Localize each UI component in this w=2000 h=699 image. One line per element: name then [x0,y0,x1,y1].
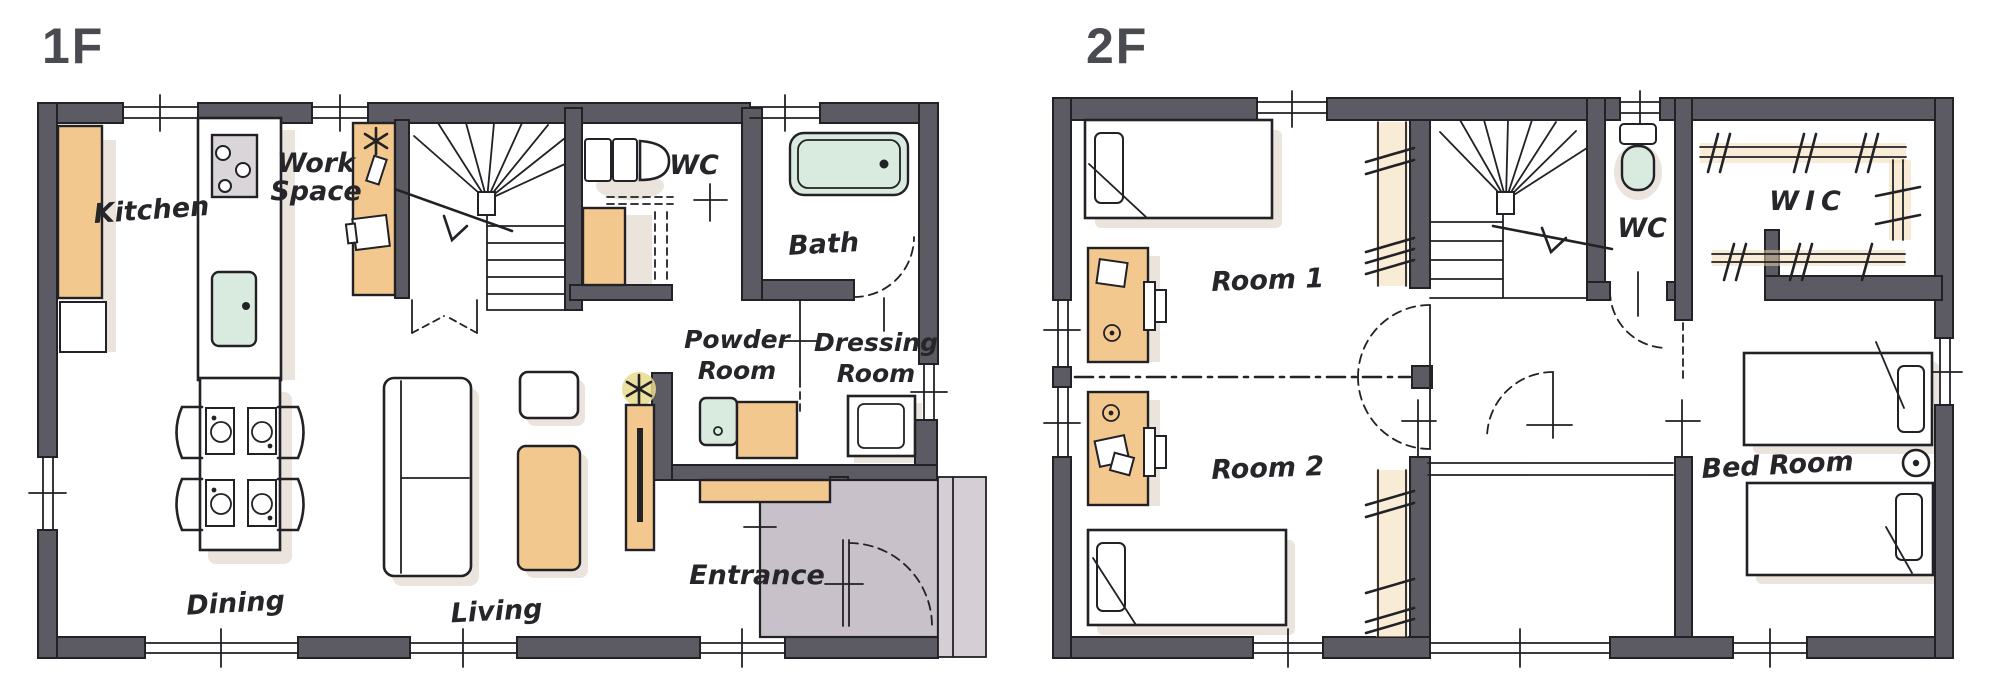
floorplan-canvas: 1F [0,0,2000,699]
label-bath: Bath [787,227,859,262]
bathtub-icon [790,133,908,195]
living-furniture [384,372,656,576]
floor-plan-1f: 1F [29,18,986,667]
svg-text:Space: Space [270,176,361,207]
work-counter [353,123,395,295]
porch-slab [938,477,986,657]
label-entrance: Entrance [689,560,825,591]
doors-2f [1358,272,1700,457]
stairs-2f [1430,120,1612,298]
label-dining: Dining [185,585,285,621]
label-dressing-room: Dressing [814,328,938,357]
sofa [384,378,471,576]
kitchen-sink-icon [212,272,256,346]
label-room2: Room 2 [1211,451,1325,486]
toilet-icon [1620,124,1656,144]
desk-chair [1144,282,1155,330]
toilet-icon [585,139,611,181]
stair-newel-2f [1497,192,1514,214]
pillow [1898,366,1924,432]
void-railing [1428,463,1673,475]
label-work-space: Work [277,148,357,179]
floor-title-1f: 1F [42,18,104,74]
label-powder-room: Powder [684,325,791,354]
closets-2f [1366,122,1414,637]
label-wc-2f: WC [1617,213,1667,244]
toilet-bowl [1622,146,1654,190]
floorplan-page: 1F [0,0,2000,699]
coffee-table [518,446,580,570]
monitor-icon [1096,259,1127,287]
svg-text:Room: Room [837,359,915,388]
label-bed-room: Bed Room [1701,446,1855,485]
stair-newel-1f [478,192,495,215]
floor-cushion [520,372,578,418]
label-living: Living [450,594,543,630]
svg-text:Room: Room [698,356,776,385]
wc-cabinet [583,208,625,285]
label-wic: WIC [1769,186,1847,217]
desk-chair [352,215,390,250]
room2-furniture [1088,392,1286,625]
floor-title-2f: 2F [1086,18,1148,74]
shoe-cabinet [700,480,830,502]
tv-icon [637,428,643,522]
room1-furniture [1085,120,1272,362]
kitchen-fridge [60,302,106,352]
stair-door-arc [1487,372,1553,438]
desk-chair [1144,428,1155,476]
floor-plan-2f: 2F [1044,18,1962,667]
wc-2f-fixtures [1614,124,1662,200]
bath-door-arc [854,237,914,297]
kitchen-fixtures [58,118,281,380]
washbasin-icon [700,398,737,445]
label-room1: Room 1 [1211,263,1325,298]
label-wc-1f: WC [669,150,719,181]
basin-counter [737,402,797,458]
